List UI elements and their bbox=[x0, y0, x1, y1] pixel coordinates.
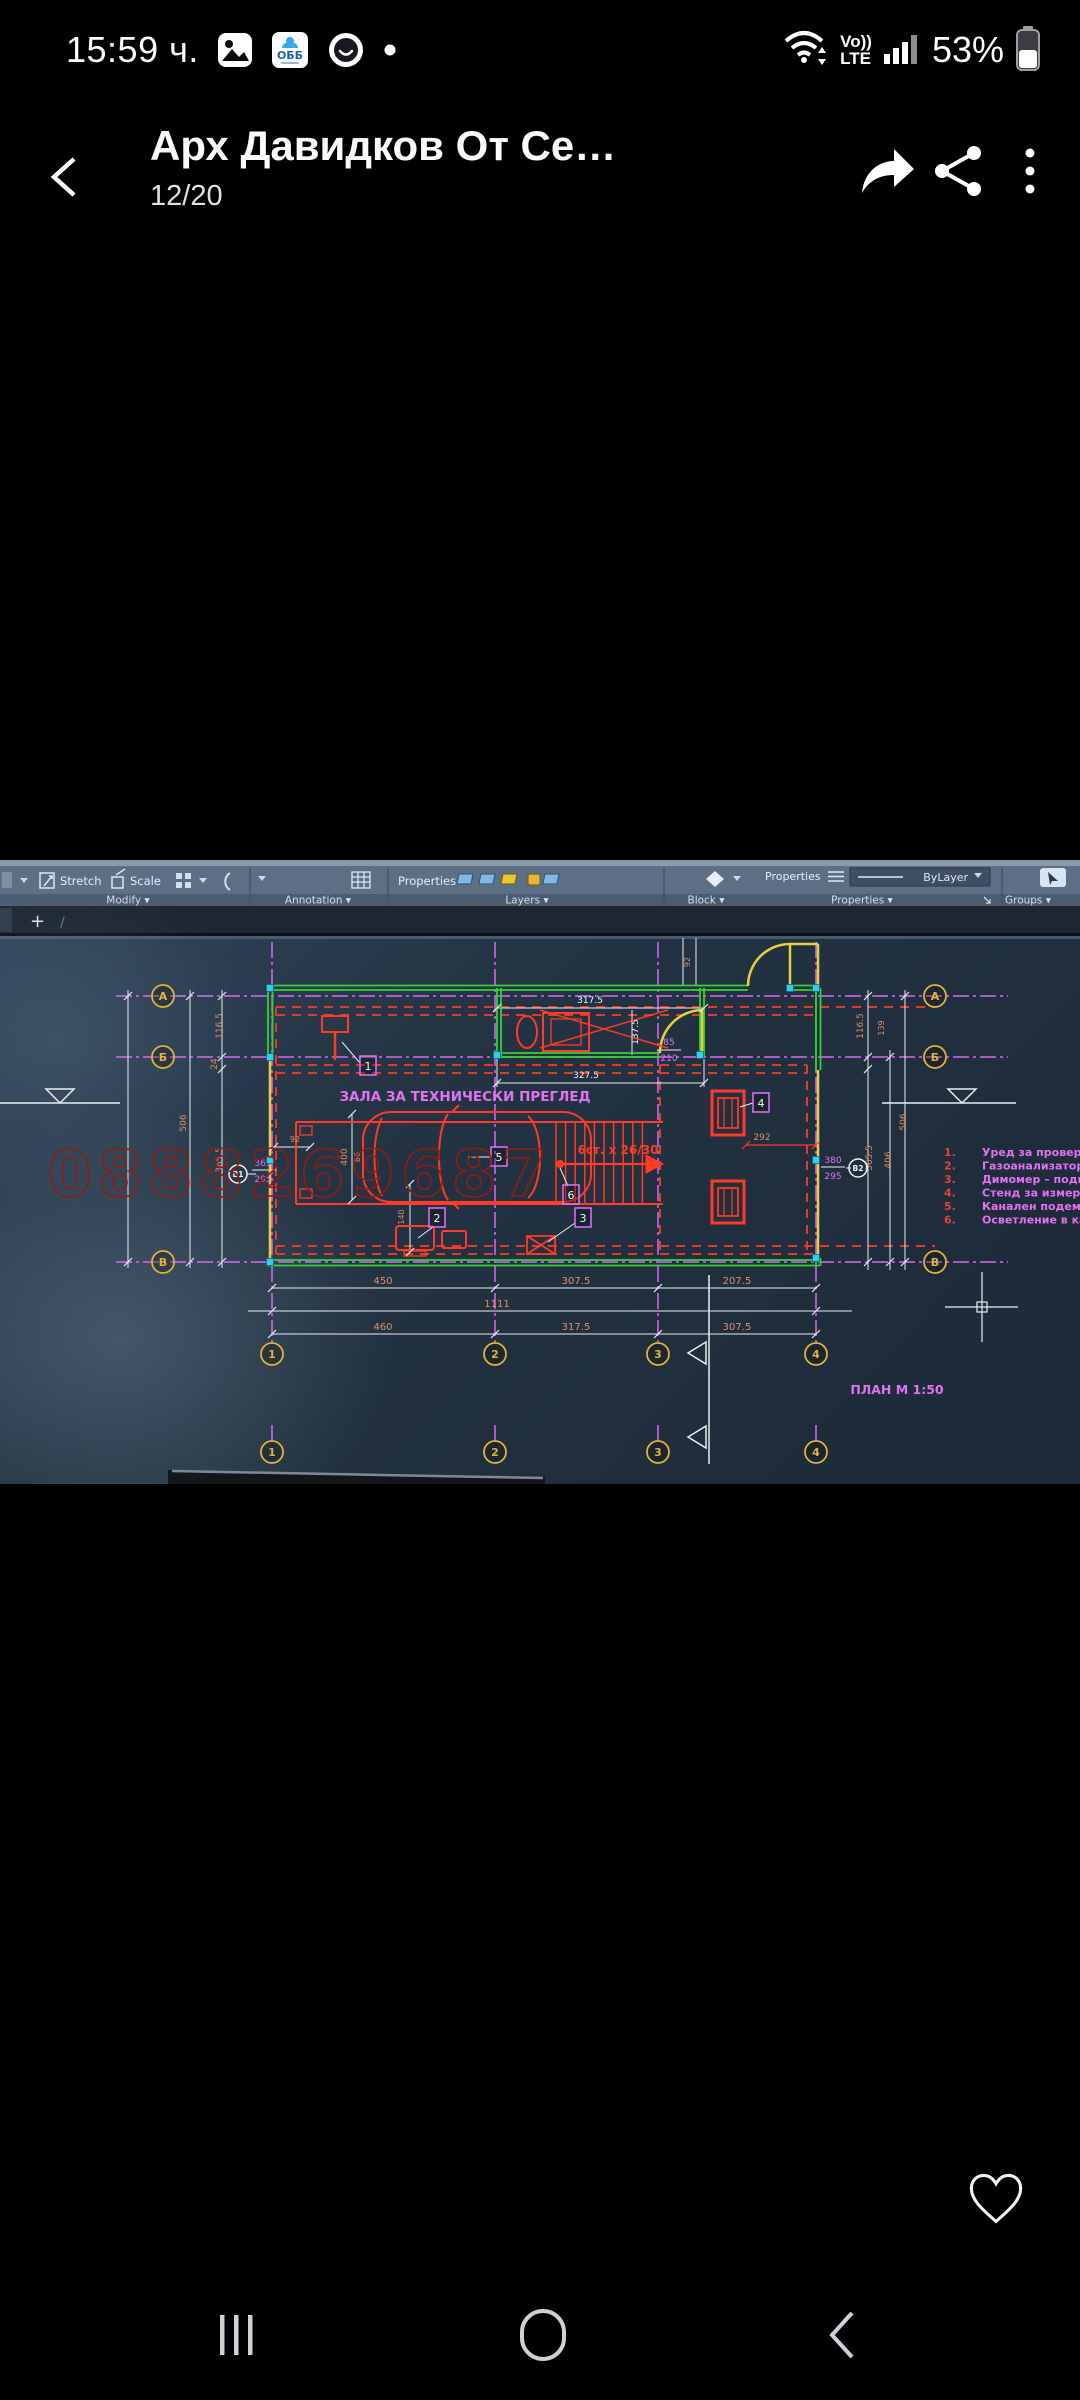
ref-circle-label: В2 bbox=[853, 1164, 864, 1173]
axis-bubble-label: 3 bbox=[654, 1446, 662, 1459]
axis-bubble-label: А bbox=[931, 990, 940, 1003]
dim-label: 85 bbox=[663, 1038, 674, 1048]
plan-scale-label: ПЛАН М 1:50 bbox=[850, 1382, 944, 1397]
properties-label: Properties bbox=[765, 870, 821, 883]
screen-top-edge bbox=[0, 860, 1080, 866]
callout-number: 3 bbox=[580, 1212, 587, 1225]
axis-bubble-label: 3 bbox=[654, 1348, 662, 1361]
status-bar: 15:59 ч. ОББ Vo))LTE 53% bbox=[0, 18, 1080, 82]
signal-icon bbox=[882, 30, 922, 71]
legend-number: 5. bbox=[944, 1200, 956, 1213]
axis-bubble-label: 4 bbox=[812, 1446, 820, 1459]
axis-bubble-label: 1 bbox=[268, 1348, 276, 1361]
legend-number: 3. bbox=[944, 1173, 956, 1186]
axis-bubble-label: Б bbox=[159, 1051, 167, 1064]
grip bbox=[267, 985, 274, 992]
axis-bubble-label: 2 bbox=[491, 1348, 499, 1361]
dim-label: 406 bbox=[884, 1151, 894, 1168]
axis-bubble-label: Б bbox=[931, 1051, 939, 1064]
grip bbox=[267, 1054, 274, 1061]
dim-label: 307.5 bbox=[562, 1276, 591, 1287]
dim-label: 292 bbox=[753, 1133, 770, 1143]
legend-item: Стенд за измерване bbox=[982, 1187, 1080, 1200]
groups-panel-label: Groups ▾ bbox=[1005, 895, 1052, 907]
dim-label: 1111 bbox=[484, 1299, 509, 1310]
dim-label: 307.5 bbox=[723, 1322, 752, 1333]
overflow-menu-button[interactable] bbox=[994, 132, 1066, 212]
axis-bubble-label: В bbox=[159, 1256, 167, 1269]
dim-label: 116.5 bbox=[215, 1013, 225, 1039]
layer-properties-label: Properties bbox=[398, 874, 456, 888]
bylayer-value: ByLayer bbox=[923, 871, 968, 884]
page-title: Арх Давидков От Се… bbox=[150, 122, 850, 170]
notification-dot bbox=[383, 43, 397, 57]
dim-label: 139 bbox=[877, 1020, 886, 1035]
forward-share-button[interactable] bbox=[850, 132, 922, 212]
axis-bubble-label: А bbox=[159, 990, 168, 1003]
stairs-label: 6ст. х 26/30 bbox=[578, 1143, 659, 1157]
battery-icon bbox=[1014, 24, 1042, 77]
gallery-notification-icon bbox=[217, 32, 253, 68]
axis-bubble-label: 2 bbox=[491, 1446, 499, 1459]
back-nav-button[interactable] bbox=[783, 2296, 903, 2376]
legend-number: 6. bbox=[944, 1214, 956, 1227]
dim-label: 92 bbox=[683, 957, 692, 967]
callout-number: 1 bbox=[365, 1060, 372, 1073]
dim-label: 506 bbox=[899, 1113, 909, 1130]
dim-label: 450 bbox=[373, 1276, 392, 1287]
legend-number: 2. bbox=[944, 1160, 956, 1173]
dim-label: 460 bbox=[373, 1322, 392, 1333]
callout-number: 2 bbox=[434, 1212, 441, 1225]
dim-label: 317.5 bbox=[577, 996, 603, 1006]
dim-label: 207.5 bbox=[723, 1276, 752, 1287]
grip bbox=[787, 985, 794, 992]
layers-panel-label: Layers ▾ bbox=[505, 895, 549, 907]
wifi-icon bbox=[782, 27, 830, 74]
properties-panel-label: Properties ▾ bbox=[831, 895, 893, 907]
grip bbox=[813, 1255, 820, 1262]
legend-item: Канален подемник - bbox=[982, 1200, 1080, 1213]
axis-bubble-label: 4 bbox=[812, 1348, 820, 1361]
grip bbox=[697, 1052, 704, 1059]
watermark-phone-number: 0888269687 bbox=[47, 1138, 552, 1212]
navigation-bar bbox=[0, 2296, 1080, 2382]
legend-item: Уред за проверка р bbox=[982, 1146, 1080, 1159]
share-icon[interactable] bbox=[922, 132, 994, 212]
dim-label: 295 bbox=[824, 1172, 841, 1182]
axis-bubble-label: 1 bbox=[268, 1446, 276, 1459]
legend-item: Осветление в канал bbox=[982, 1214, 1080, 1227]
home-button[interactable] bbox=[483, 2296, 603, 2376]
grip bbox=[494, 1052, 501, 1059]
grip bbox=[813, 1157, 820, 1164]
dim-label: 380 bbox=[824, 1156, 841, 1166]
axis-bubble-label: В bbox=[931, 1256, 939, 1269]
favorite-button[interactable] bbox=[958, 2162, 1034, 2238]
legend-number: 4. bbox=[944, 1187, 956, 1200]
volte-indicator: Vo))LTE bbox=[840, 33, 872, 67]
back-button[interactable] bbox=[30, 138, 110, 218]
grip bbox=[267, 1259, 274, 1266]
heart-icon bbox=[971, 2175, 1020, 2221]
grip bbox=[813, 985, 820, 992]
smiley-notification-icon bbox=[327, 31, 365, 69]
block-panel-label: Block ▾ bbox=[687, 895, 725, 907]
legend-number: 1. bbox=[944, 1146, 956, 1159]
dim-label: 137.5 bbox=[631, 1019, 641, 1045]
dim-label: 327.5 bbox=[573, 1071, 599, 1081]
recents-button[interactable] bbox=[183, 2296, 303, 2376]
clock: 15:59 ч. bbox=[66, 29, 199, 71]
annotation-panel-label: Annotation ▾ bbox=[285, 895, 352, 907]
dim-label: 506 bbox=[179, 1114, 189, 1131]
image-counter: 12/20 bbox=[150, 180, 850, 213]
legend-item: Газоанализатор – п bbox=[982, 1160, 1080, 1173]
photo-viewer[interactable]: Stretch Scale Modify ▾ Annotation ▾ Prop… bbox=[0, 860, 1080, 1484]
obb-bank-notification-icon: ОББ bbox=[271, 31, 309, 69]
legend-item: Димомер – подвижн bbox=[982, 1173, 1080, 1186]
callout-number: 4 bbox=[758, 1097, 765, 1110]
room-title: ЗАЛА ЗА ТЕХНИЧЕСКИ ПРЕГЛЕД bbox=[339, 1089, 590, 1105]
dim-label: 116.5 bbox=[856, 1013, 866, 1039]
battery-percent: 53% bbox=[932, 29, 1004, 71]
svg-text:ОББ: ОББ bbox=[277, 49, 303, 62]
dim-label: 210 bbox=[660, 1054, 677, 1064]
app-header: Арх Давидков От Се… 12/20 bbox=[0, 118, 1080, 258]
dim-label: 317.5 bbox=[562, 1322, 591, 1333]
callout-number: 6 bbox=[568, 1189, 575, 1202]
